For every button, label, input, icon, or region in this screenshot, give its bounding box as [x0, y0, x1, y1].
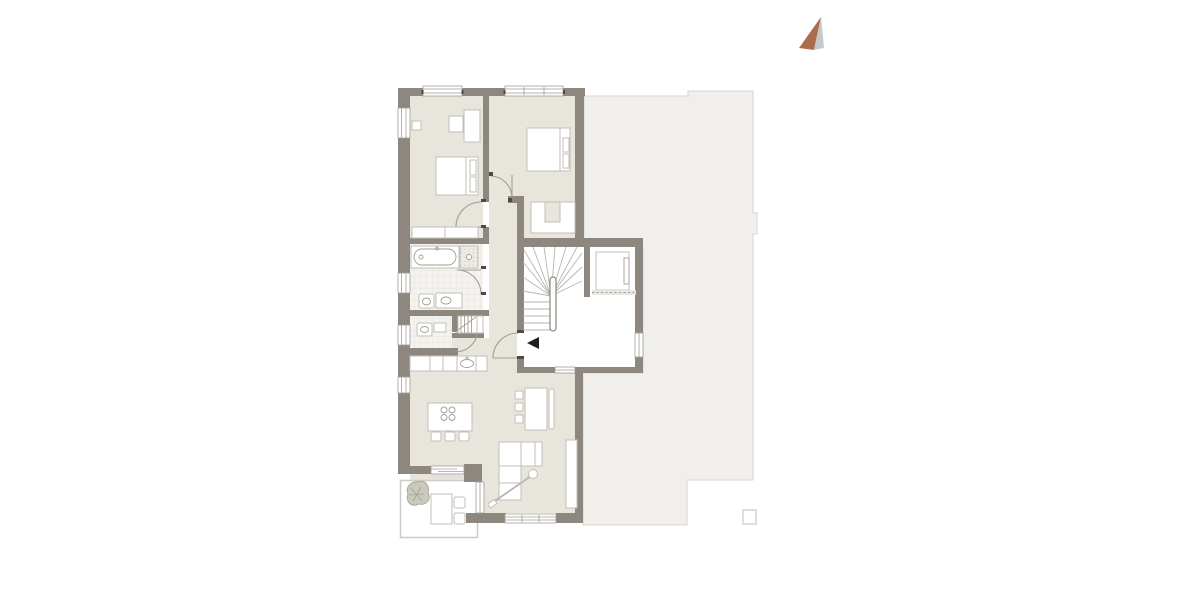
north-arrow-icon [799, 17, 824, 50]
hall-east-window [635, 333, 643, 357]
balcony [401, 477, 478, 538]
bedroom-1-window [422, 86, 464, 96]
wc-toilet [417, 323, 432, 336]
balcony-table [431, 494, 452, 524]
dining-table [525, 388, 547, 430]
kitchen-window [398, 377, 410, 393]
closet-nook-opening [545, 202, 560, 222]
chair [515, 403, 523, 411]
bar-stool [445, 432, 455, 441]
sideboard [566, 440, 577, 508]
utility-closet [458, 316, 483, 333]
stair-handrail [550, 277, 556, 331]
dresser [449, 116, 463, 132]
bar-stool [459, 432, 469, 441]
corridor-floor [489, 175, 517, 373]
pillow [563, 154, 569, 168]
floor-plan-canvas [0, 0, 1200, 600]
living-room-window [505, 514, 556, 523]
elevator [592, 252, 636, 295]
pillow [563, 138, 569, 152]
balcony-side-window [476, 482, 484, 513]
entrance-hall-floor [582, 292, 635, 367]
plant [407, 481, 429, 505]
wc-window [398, 325, 410, 345]
balcony-chair [454, 497, 465, 508]
balcony-chair [454, 513, 465, 524]
bar-stool [431, 432, 441, 441]
bench [549, 389, 554, 429]
wc-shelf [434, 323, 446, 332]
column-marker [743, 510, 756, 524]
floor-plan-page [0, 0, 1200, 600]
vanity [436, 293, 462, 308]
chair [515, 415, 523, 423]
bathroom-window [398, 273, 410, 293]
closet-niche [477, 316, 483, 333]
side-table [412, 121, 421, 130]
hall-south-window [555, 367, 575, 373]
toilet [419, 294, 434, 308]
kitchen-counter [410, 356, 487, 371]
chair [515, 391, 523, 399]
pillow [470, 160, 476, 175]
bedroom-2-window [504, 86, 566, 96]
pillow [470, 177, 476, 192]
balcony-sliding-door [431, 466, 464, 474]
bedroom-1-side-window [398, 108, 410, 138]
wardrobe [464, 110, 480, 142]
